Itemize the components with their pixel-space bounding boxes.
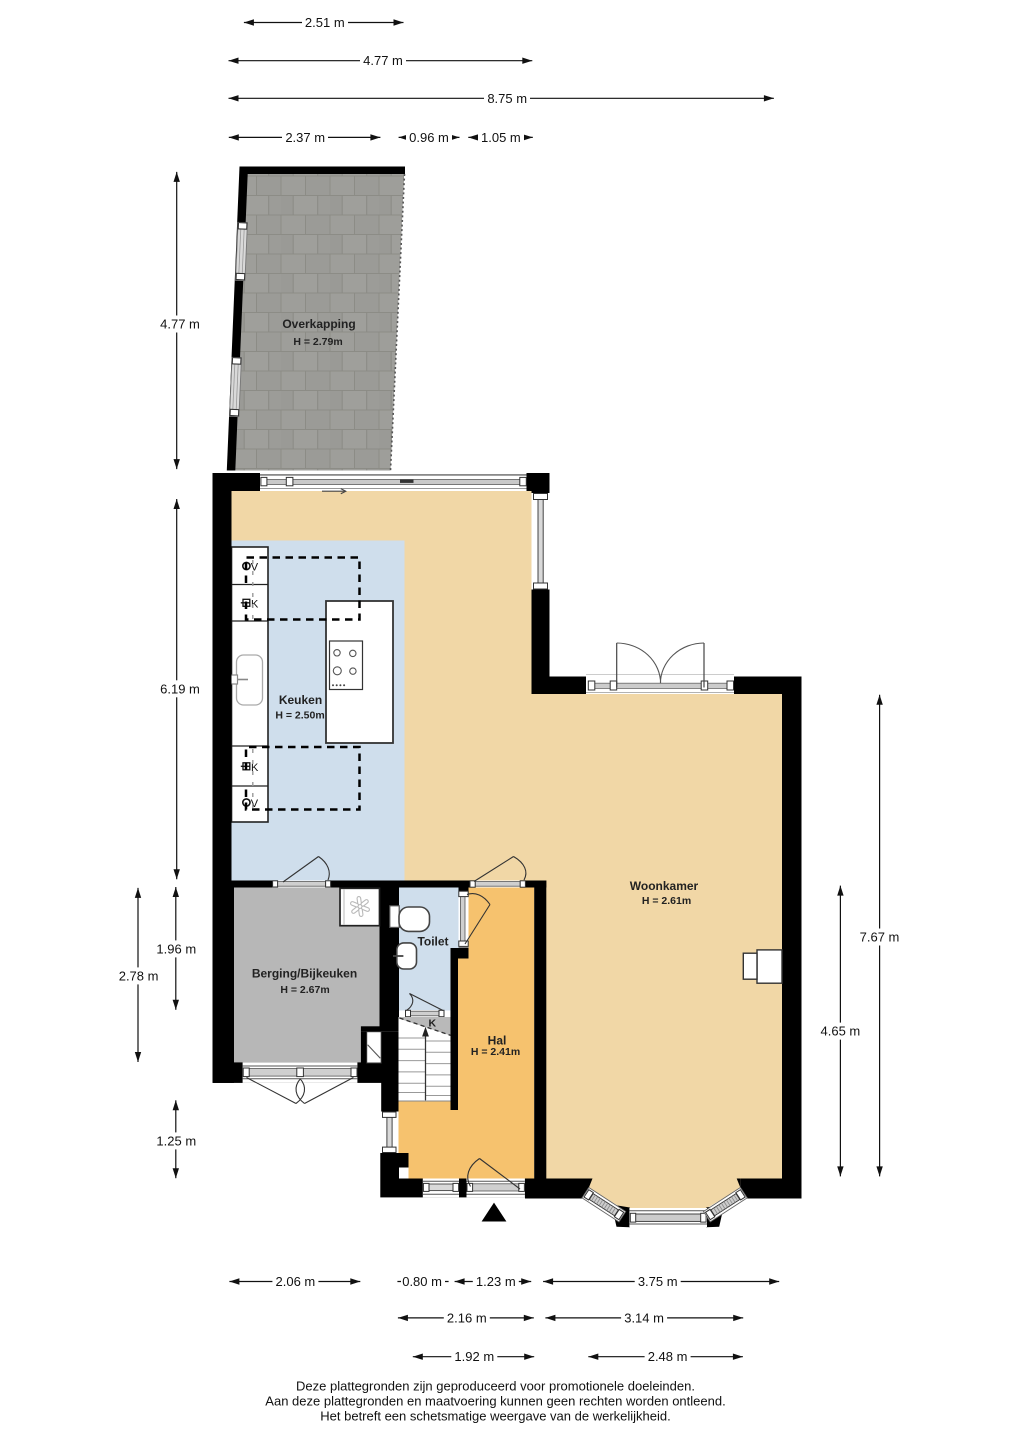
svg-text:2.37 m: 2.37 m — [285, 130, 325, 145]
svg-text:2.06 m: 2.06 m — [276, 1274, 316, 1289]
svg-text:K: K — [429, 1018, 437, 1030]
svg-text:Toilet: Toilet — [417, 935, 448, 949]
svg-text:4.65 m: 4.65 m — [821, 1024, 861, 1039]
svg-text:1.25 m: 1.25 m — [156, 1133, 196, 1148]
svg-text:4.77 m: 4.77 m — [363, 53, 403, 68]
svg-text:Woonkamer: Woonkamer — [630, 879, 699, 893]
svg-text:2.51 m: 2.51 m — [305, 15, 345, 30]
svg-text:H = 2.79m: H = 2.79m — [293, 336, 342, 348]
svg-text:V: V — [251, 798, 259, 810]
svg-text:V: V — [251, 562, 259, 574]
svg-text:7.67 m: 7.67 m — [860, 930, 900, 945]
svg-text:1.05 m: 1.05 m — [481, 130, 521, 145]
svg-text:Aan deze plattegronden en maat: Aan deze plattegronden en maatvoering ku… — [265, 1394, 725, 1409]
svg-text:2.48 m: 2.48 m — [648, 1349, 688, 1364]
svg-text:Keuken: Keuken — [279, 693, 322, 707]
svg-text:H = 2.50m: H = 2.50m — [275, 710, 324, 722]
svg-text:Deze plattegronden zijn geprod: Deze plattegronden zijn geproduceerd voo… — [296, 1379, 695, 1394]
svg-text:4.77 m: 4.77 m — [160, 317, 200, 332]
svg-text:2.78 m: 2.78 m — [119, 968, 159, 983]
svg-text:3.14 m: 3.14 m — [624, 1310, 664, 1325]
svg-text:H = 2.67m: H = 2.67m — [280, 984, 329, 996]
svg-text:0.96 m: 0.96 m — [409, 130, 449, 145]
svg-text:Het betreft een schetsmatige w: Het betreft een schetsmatige weergave va… — [320, 1409, 670, 1424]
svg-text:Overkapping: Overkapping — [282, 317, 355, 331]
svg-text:1.92 m: 1.92 m — [454, 1349, 494, 1364]
svg-text:8.75 m: 8.75 m — [487, 91, 527, 106]
svg-text:0.80 m: 0.80 m — [402, 1274, 442, 1289]
svg-text:Berging/Bijkeuken: Berging/Bijkeuken — [252, 967, 357, 981]
svg-text:H = 2.61m: H = 2.61m — [642, 895, 691, 907]
svg-text:6.19 m: 6.19 m — [160, 681, 200, 696]
svg-text:1.96 m: 1.96 m — [156, 941, 196, 956]
svg-text:H = 2.41m: H = 2.41m — [471, 1046, 520, 1058]
svg-text:3.75 m: 3.75 m — [638, 1274, 678, 1289]
svg-text:2.16 m: 2.16 m — [447, 1310, 487, 1325]
svg-text:1.23 m: 1.23 m — [476, 1274, 516, 1289]
